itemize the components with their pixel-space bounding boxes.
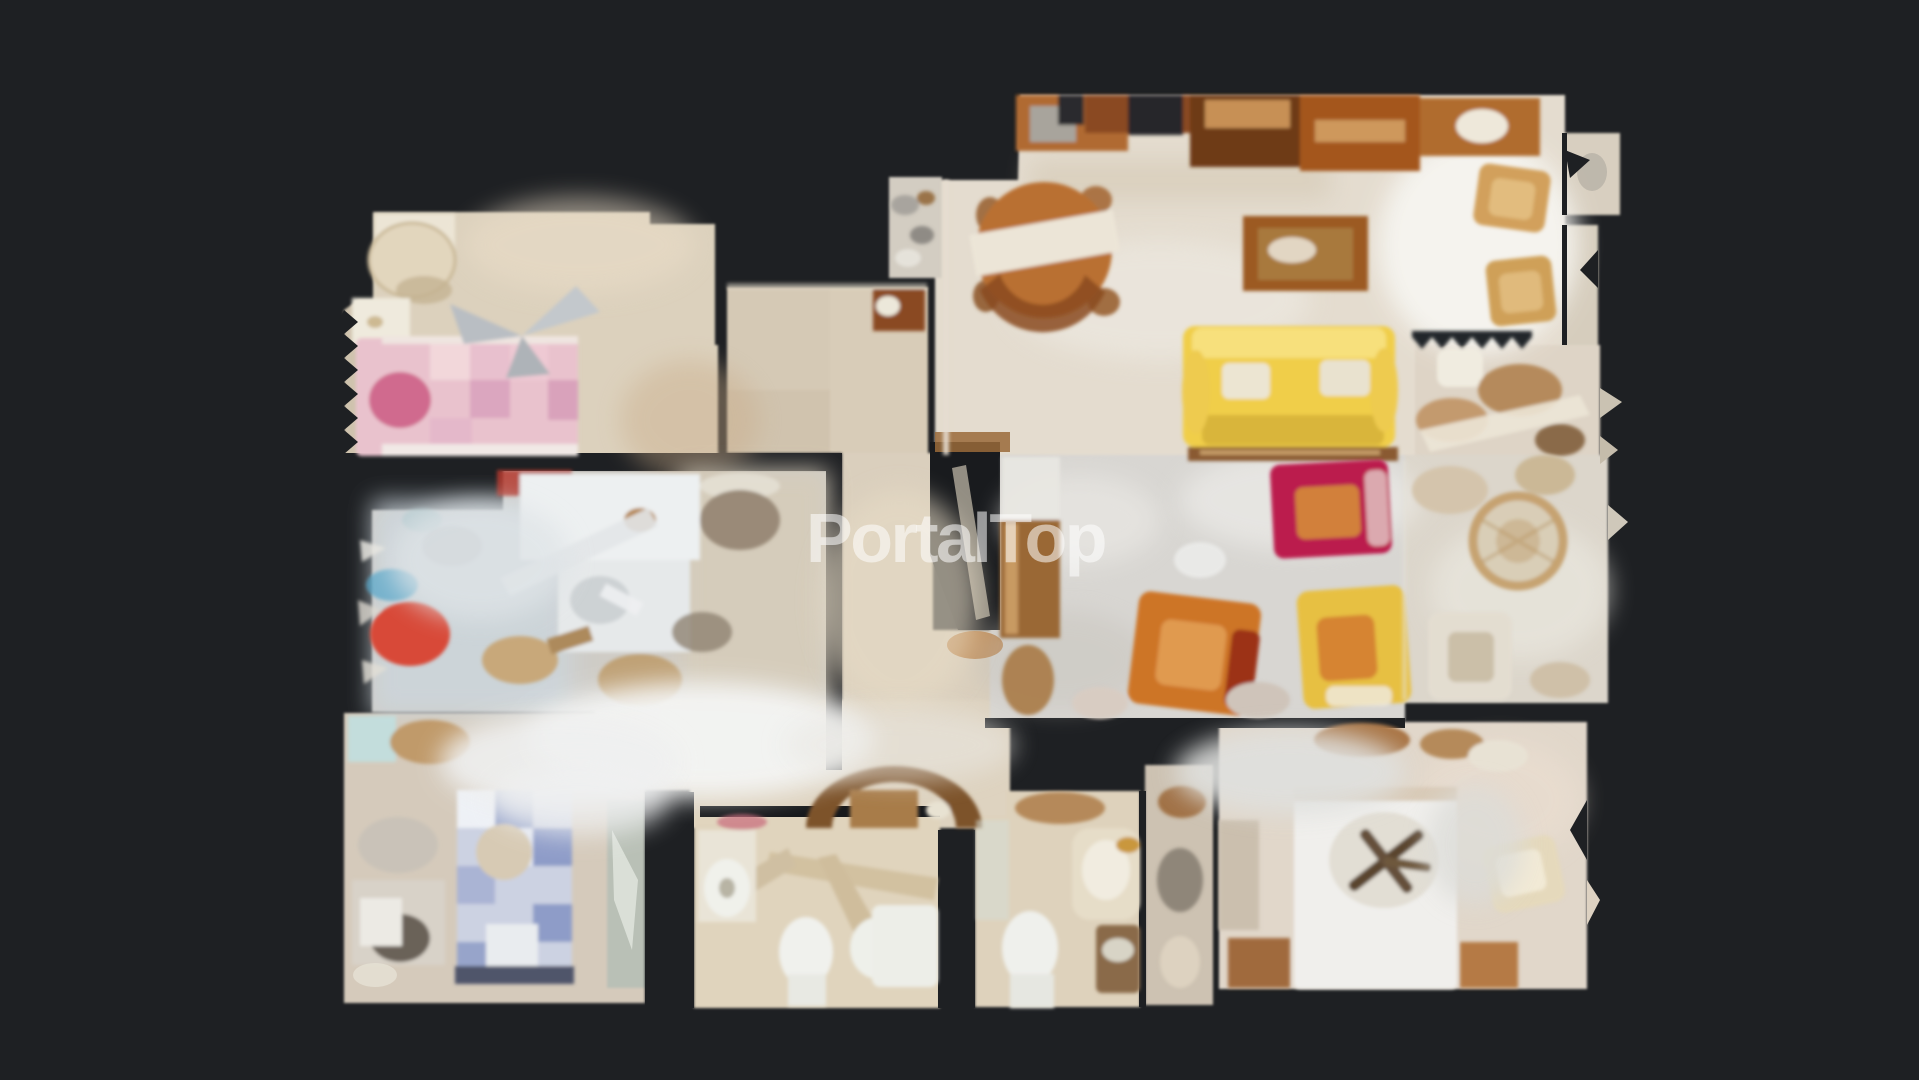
svg-text:PortalTop: PortalTop [806,499,1105,577]
